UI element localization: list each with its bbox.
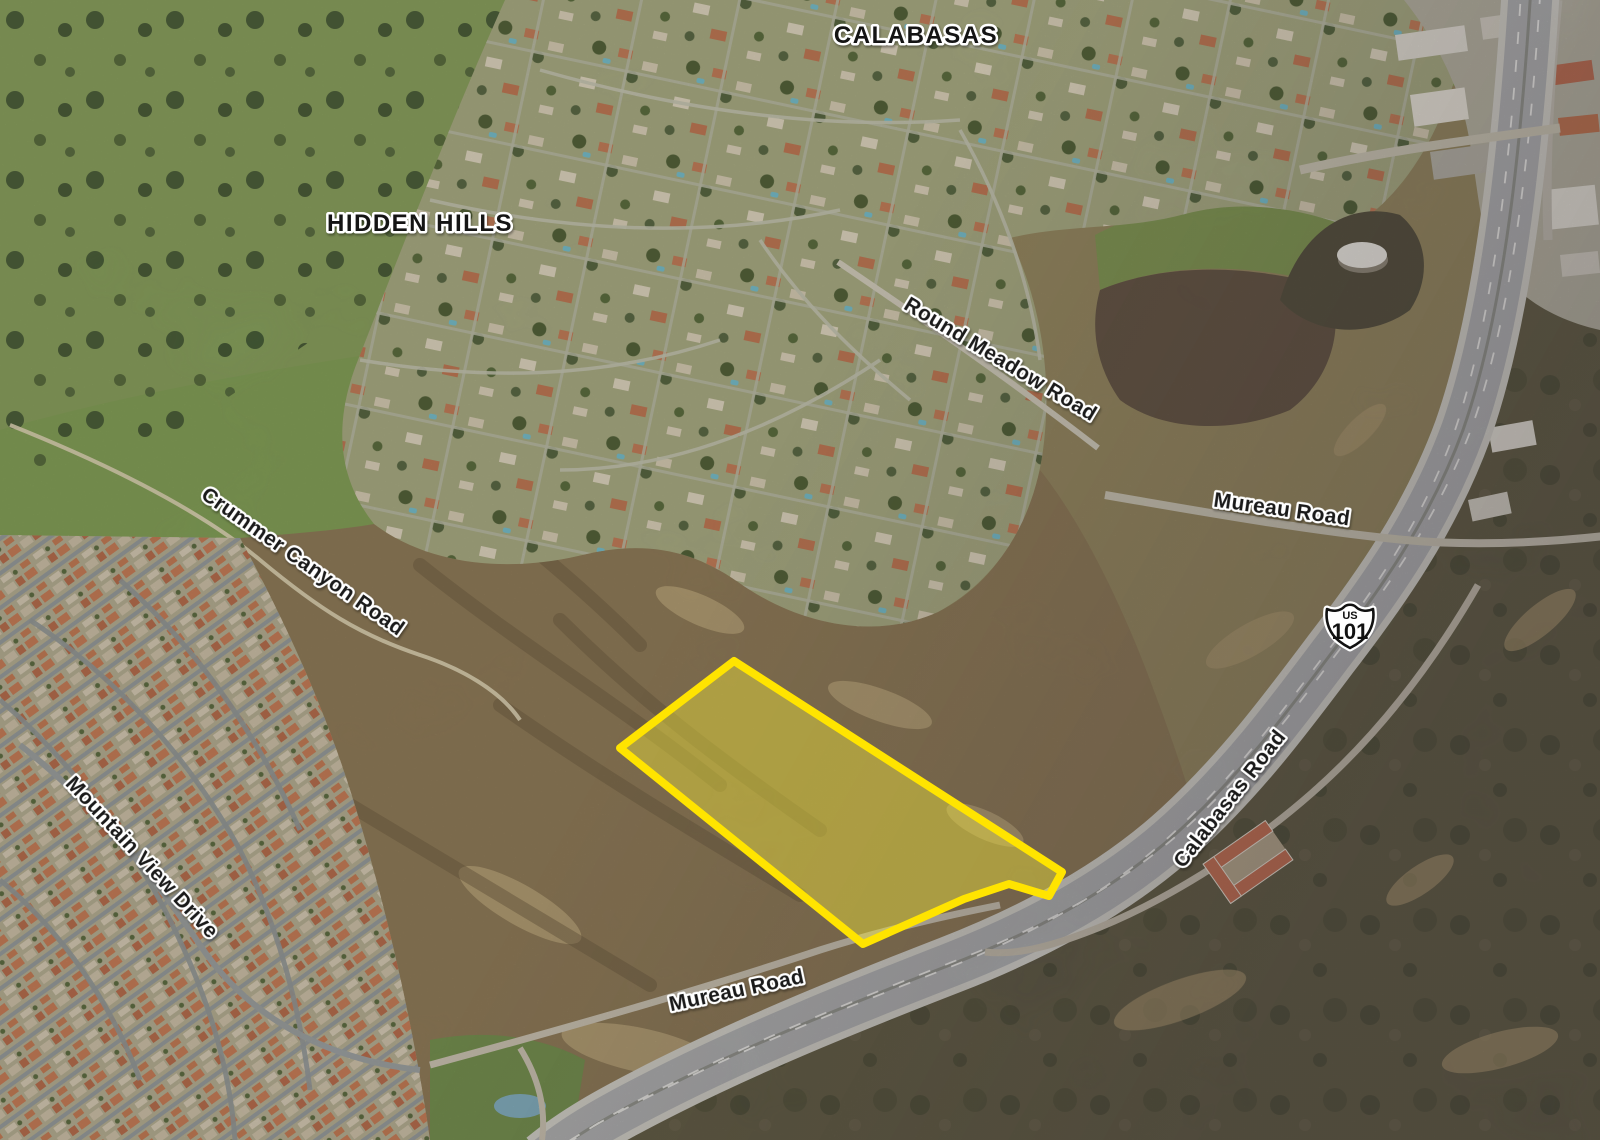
- label-calabasas: CALABASAS: [834, 22, 998, 49]
- aerial-map: CALABASAS HIDDEN HILLS Round Meadow Road…: [0, 0, 1600, 1140]
- aerial-map-canvas: CALABASAS HIDDEN HILLS Round Meadow Road…: [0, 0, 1600, 1140]
- us101-shield-number: 101: [1332, 619, 1369, 644]
- us101-shield: US 101: [1327, 605, 1374, 648]
- label-hidden-hills: HIDDEN HILLS: [327, 210, 513, 237]
